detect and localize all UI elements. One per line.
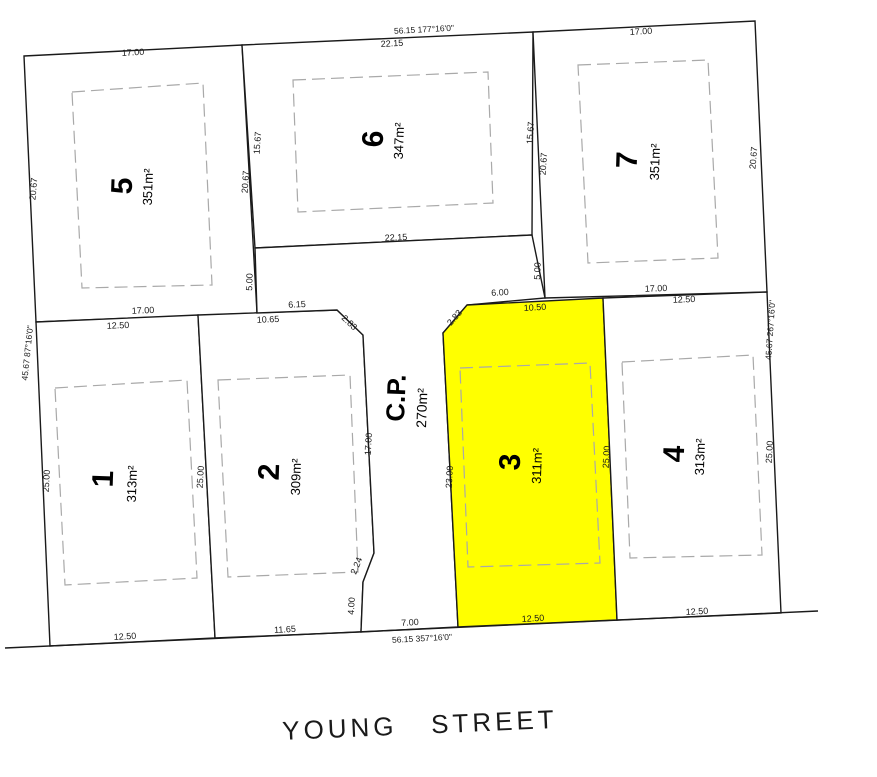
lot-5-area-label: 351m² xyxy=(140,168,156,206)
lot-2-number-label: 2 xyxy=(253,463,287,481)
dimension-label-9: 10.65 xyxy=(256,314,279,325)
dimension-label-37: 12.50 xyxy=(521,613,544,624)
dimension-label-21: 20.67 xyxy=(538,152,550,175)
dimension-label-38: 12.50 xyxy=(685,606,708,617)
lot-7-area-label: 351m² xyxy=(647,143,663,181)
dimension-label-30: 25.00 xyxy=(41,469,52,492)
dimension-label-15: 17.00 xyxy=(645,283,668,294)
dimension-label-25: 17.00 xyxy=(363,432,374,455)
dimension-label-29: 25.00 xyxy=(601,445,612,468)
lot-1-area-label: 313m² xyxy=(124,465,140,503)
dimension-label-8: 12.50 xyxy=(106,320,129,331)
dimension-label-35: 7.00 xyxy=(401,617,419,628)
survey-plan-canvas: 5351m²6347m²7351m²1313m²2309m²C.P.270m²3… xyxy=(0,0,877,777)
dimension-label-16: 12.50 xyxy=(673,294,696,305)
dimension-label-31: 25.00 xyxy=(195,465,206,488)
dimension-label-33: 12.50 xyxy=(113,631,136,642)
dimension-label-22: 20.67 xyxy=(747,146,759,169)
dimension-label-0: 17.00 xyxy=(121,47,144,58)
dimension-label-19: 15.67 xyxy=(252,131,264,154)
lot-2-area-label: 309m² xyxy=(288,458,304,496)
common-property-number-label: C.P. xyxy=(380,374,412,422)
dimension-label-18: 20.67 xyxy=(240,170,252,193)
dimension-label-10: 6.15 xyxy=(288,299,306,310)
survey-plan-page: 5351m²6347m²7351m²1313m²2309m²C.P.270m²3… xyxy=(0,0,877,777)
dimension-label-27: 4.00 xyxy=(346,597,357,615)
lot-1-number-label: 1 xyxy=(87,470,121,488)
lot-6-number-label: 6 xyxy=(357,130,391,148)
dimension-label-20: 15.67 xyxy=(525,121,537,144)
lot-4-number-label: 4 xyxy=(658,445,692,463)
dimension-label-3: 17.00 xyxy=(629,26,652,37)
lot-5-number-label: 5 xyxy=(106,177,140,195)
lot-3-area-label: 311m² xyxy=(529,447,545,484)
dimension-label-2: 22.15 xyxy=(380,38,403,49)
common-property-area-label: 270m² xyxy=(413,388,430,429)
lot-2-boundary[interactable] xyxy=(198,310,374,638)
dimension-label-17: 20.67 xyxy=(27,177,39,200)
lot-7-number-label: 7 xyxy=(611,151,645,169)
dimension-label-7: 17.00 xyxy=(131,305,154,316)
lot-6-area-label: 347m² xyxy=(391,122,407,160)
dimension-label-12: 6.00 xyxy=(491,287,509,298)
dimension-label-4: 22.15 xyxy=(384,232,407,243)
dimension-label-28: 23.00 xyxy=(444,465,455,488)
dimension-label-34: 11.65 xyxy=(274,624,296,635)
lot-4-area-label: 313m² xyxy=(692,438,708,476)
dimension-label-32: 25.00 xyxy=(764,440,775,463)
dimension-label-5: 5.00 xyxy=(244,273,255,291)
lot-3-number-label: 3 xyxy=(494,453,528,471)
dimension-label-13: 10.50 xyxy=(523,302,546,313)
dimension-label-6: 5.00 xyxy=(532,262,543,280)
